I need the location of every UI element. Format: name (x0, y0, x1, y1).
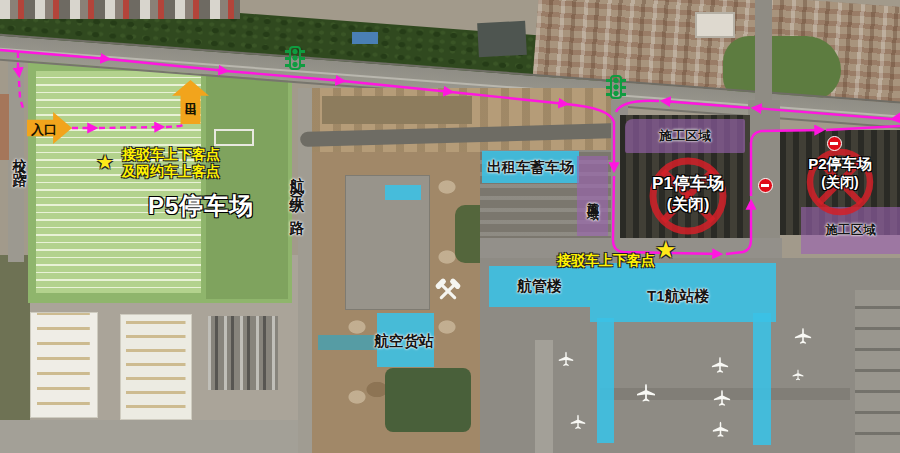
terminal-t1-west-pier (597, 318, 614, 443)
road-hangkong-label: 航空纵一路 (287, 164, 306, 219)
construction-zone-mid: 施工区域 (577, 156, 608, 236)
p5-shuttle-stop-star: ★ (96, 150, 114, 174)
p5-lot-label: P5停车场 (148, 190, 254, 222)
construction-zone-p1: 施工区域 (625, 119, 745, 153)
taxi-pool-label: 出租车蓄车场 (487, 158, 574, 177)
sat-dark-building (477, 21, 527, 57)
sat-apron-strip (0, 420, 302, 453)
construction-zone-p2-label: 施工区域 (826, 222, 876, 239)
construction-zone-p1-label: 施工区域 (659, 127, 711, 145)
unlabeled-cyan-building (385, 185, 421, 200)
apron-service-road (535, 340, 553, 453)
vegetation-patch-south (385, 368, 471, 432)
construction-zone-p2: 施工区域 (801, 207, 900, 254)
road-northeast-vertical (755, 0, 772, 100)
p5-entrance-label: 入口 (31, 121, 57, 139)
terminal-t1-east-pier (753, 313, 771, 445)
airport-satellite-map: 出租车蓄车场 施工区域 施工区域 施工区域 航管楼 (0, 0, 900, 453)
p2-lot-label: P2停车场 (808, 155, 871, 172)
atc-building-label: 航管楼 (517, 277, 562, 296)
sat-red-building (0, 94, 9, 160)
no-entry-badge-p2-gate (827, 136, 842, 151)
p2-label-group: P2停车场 (关闭) (790, 155, 890, 191)
apron-taxiway-east (855, 290, 900, 453)
t1-shuttle-note: 接驳车上下客点 (557, 252, 655, 270)
warehouse-b (120, 314, 192, 420)
sat-houses-row (0, 0, 240, 19)
terminal-t1-label: T1航站楼 (647, 287, 710, 306)
traffic-light-icon-east (610, 75, 622, 99)
traffic-light-icon-west (289, 46, 301, 70)
road-xiaofei-label: 校飞路 (11, 146, 29, 170)
p5-shuttle-note-line1: 接驳车上下客点 (122, 146, 220, 164)
no-entry-badge-p1p2-road (758, 178, 773, 193)
sat-blue-shed (352, 32, 378, 44)
t1-shuttle-stop-star: ★ (655, 236, 677, 264)
excavation-pit (322, 96, 472, 124)
warehouse-a (30, 312, 98, 418)
p5-parking-rows (36, 71, 201, 293)
p1-status-label: (关闭) (667, 196, 710, 213)
sat-white-building (695, 12, 735, 38)
atc-building-highlight: 航管楼 (489, 266, 590, 307)
construction-zone-mid-label: 施工区域 (584, 192, 601, 200)
p2-status-label: (关闭) (821, 174, 858, 190)
p5-depot-outline (214, 129, 254, 146)
p5-shuttle-note-line2: 及网约车上客点 (122, 163, 220, 181)
air-cargo-label: 航空货站 (374, 332, 434, 351)
taxi-pool-highlight: 出租车蓄车场 (482, 151, 579, 183)
teal-shed (318, 335, 380, 350)
p1-lot-label: P1停车场 (652, 174, 724, 193)
sat-car-park (208, 316, 278, 390)
p1-label-group: P1停车场 (关闭) (628, 172, 748, 216)
